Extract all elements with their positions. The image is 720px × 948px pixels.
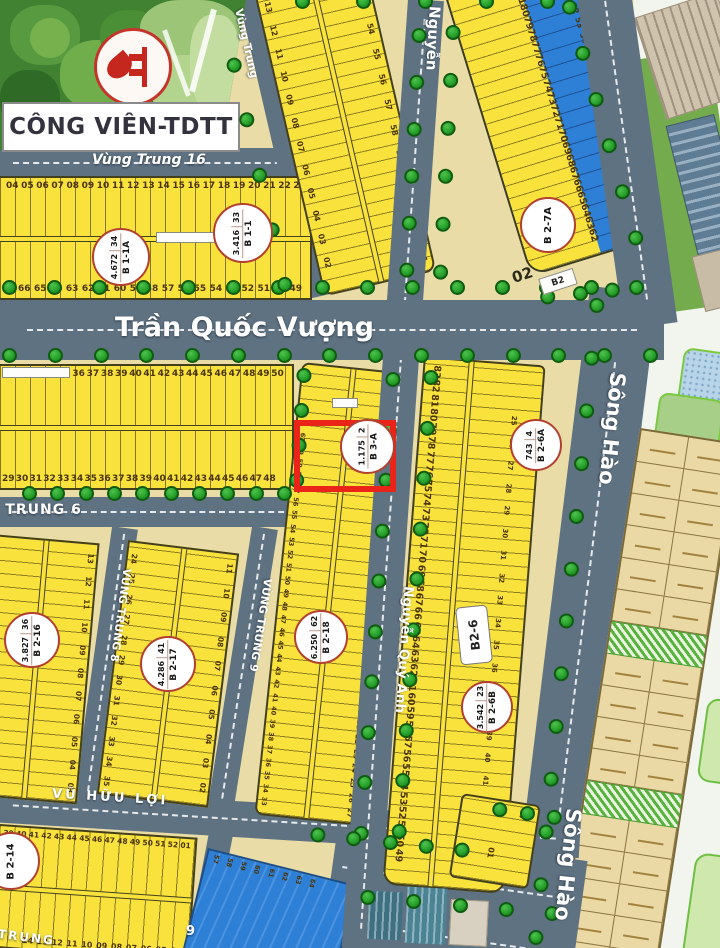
plot-number: 44 — [66, 834, 77, 842]
tree-icon — [450, 280, 465, 295]
plot-number: 36 — [98, 475, 111, 484]
code: B 2-7A — [542, 207, 553, 244]
count: 34 — [109, 232, 120, 249]
count: 2 — [356, 425, 367, 437]
plot-number: 40 — [270, 705, 278, 716]
plot-number: 50 — [273, 285, 286, 294]
dimension-label — [332, 398, 358, 408]
plot-number: 58 — [388, 124, 398, 137]
plot-number: 33 — [57, 475, 70, 484]
plot-number: 10 — [81, 941, 93, 948]
plot-number: 14 — [157, 182, 170, 191]
plot-number: 66 — [18, 285, 31, 294]
plot-number: 31 — [112, 695, 121, 706]
plot-number: 10 — [97, 182, 110, 191]
plot-number: 29 — [2, 475, 15, 484]
plot-number: 52 — [286, 549, 294, 560]
plot-number: 56 — [178, 285, 191, 294]
plot-number: 01 — [180, 842, 191, 850]
plot-number: 31 — [499, 550, 507, 561]
plot-circle-b2-17: 4.28641B 2-17 — [140, 636, 196, 692]
plot-number: 32 — [43, 475, 56, 484]
tree-icon — [238, 111, 256, 129]
plot-number: 22 — [278, 182, 291, 191]
plot-number: 64 — [50, 285, 63, 294]
plot-number: 47 — [250, 475, 263, 484]
plot-number: 46 — [278, 627, 286, 638]
plot-number: 49 — [130, 838, 141, 846]
tree-icon — [443, 73, 459, 89]
plot-number: 49 — [257, 370, 270, 379]
plot-circle-b2-18: 6.25062B 2-18 — [294, 610, 348, 664]
plot-number: 57 — [208, 853, 220, 864]
plot-number: 03 — [316, 233, 326, 246]
plot-number: 18 — [218, 182, 231, 191]
plot-number: 80 — [428, 408, 438, 422]
plot-number: 02 — [198, 782, 207, 793]
code: B 3-A — [368, 425, 379, 469]
plot-number: 61 — [263, 867, 275, 878]
plot-number: 75 — [422, 479, 432, 493]
b2-6-text: B2-6 — [465, 619, 482, 651]
block-midline — [305, 0, 384, 282]
count: 62 — [309, 612, 320, 629]
plot-number: 48 — [243, 370, 256, 379]
plot-number: 74 — [421, 493, 431, 507]
plot-circle-b2-7a: B 2-7A — [520, 197, 576, 253]
plot-number: 04 — [204, 733, 213, 744]
plot-number: 34 — [71, 475, 84, 484]
plot-number: 47 — [104, 836, 115, 844]
logo-gate-icon — [142, 47, 147, 87]
plot-number: 50 — [271, 370, 284, 379]
plot-number: 27 — [506, 460, 514, 471]
area: 4.286 — [156, 656, 167, 688]
plot-number: 51 — [285, 562, 293, 573]
plot-number: 07 — [125, 944, 137, 948]
plot-number: 79 — [427, 422, 437, 436]
count: 41 — [156, 639, 167, 656]
plot-number: 21 — [263, 182, 276, 191]
plot-number: 13 — [142, 182, 155, 191]
block-midline — [0, 884, 191, 904]
tree-icon — [433, 264, 449, 280]
code: B 2-6A — [537, 427, 548, 462]
plot-number: 24 — [129, 553, 138, 564]
plot-number: 03 — [201, 757, 210, 768]
plot-number: 53 — [359, 0, 369, 11]
plot-number: 12 — [127, 182, 140, 191]
plot-number: 34 — [494, 618, 502, 629]
park-foliage — [30, 18, 70, 58]
plot-number: 61 — [98, 285, 111, 294]
plot-number: 41 — [143, 370, 156, 379]
plot-number: 53 — [226, 285, 239, 294]
plot-number: 39 — [115, 370, 128, 379]
plot-number: 37 — [112, 475, 125, 484]
plot-number: 52 — [242, 285, 255, 294]
plot-number: 65 — [34, 285, 47, 294]
plot-number: 25 — [510, 415, 518, 426]
plot-number: 55 — [400, 763, 410, 777]
plot-number: 41 — [28, 831, 39, 839]
building-tower-icon — [449, 899, 489, 947]
plot-number: 36 — [490, 663, 498, 674]
plot-number: 49 — [289, 285, 302, 294]
building-render-bottom — [361, 884, 504, 948]
plot-number: 35 — [85, 475, 98, 484]
block-b3-a: 3435363738394041424344454647484950 29303… — [0, 364, 294, 490]
plot-number: 42 — [158, 370, 171, 379]
plot-number: 44 — [186, 370, 199, 379]
plot-number: 58 — [403, 720, 413, 734]
plot-number: 55 — [194, 285, 207, 294]
plot-number: 36 — [264, 758, 272, 769]
plot-number: 58 — [222, 857, 234, 868]
plot-number: 72 — [419, 521, 429, 535]
plot-number: 28 — [504, 483, 512, 494]
plot-number: 50 — [394, 834, 404, 848]
plot-number: 62 — [82, 285, 95, 294]
plot-number: 34 — [261, 784, 269, 795]
code: B 2-18 — [321, 612, 332, 661]
plot-number: 35 — [263, 771, 271, 782]
plot-number: 78 — [425, 436, 435, 450]
plot-number: 06 — [36, 182, 49, 191]
plot-number: 63 — [66, 285, 79, 294]
plot-number: 04 — [68, 760, 76, 771]
plot-number: 58 — [146, 285, 159, 294]
plot-number: 50 — [142, 839, 153, 847]
plot-number: 40 — [483, 753, 491, 764]
code: B 2-16 — [32, 615, 43, 664]
plot-number: 51 — [155, 840, 166, 848]
plot-number: 51 — [258, 285, 271, 294]
plot-number: 13 — [86, 553, 94, 564]
plot-number: 39 — [140, 475, 153, 484]
plot-number: 45 — [276, 640, 284, 651]
building-tower-icon — [405, 887, 448, 945]
plot-number: 47 — [279, 614, 287, 625]
plot-number: 35 — [102, 776, 111, 787]
plot-number: 46 — [92, 835, 103, 843]
plot-number: 62 — [277, 870, 289, 881]
plot-number: 11 — [273, 47, 283, 60]
plot-number: 56 — [401, 748, 411, 762]
plot-number: 55 — [371, 48, 381, 61]
count: 23 — [476, 682, 487, 699]
plot-number: 73 — [420, 507, 430, 521]
plot-circle-b2-16: 3.82736B 2-16 — [4, 612, 60, 668]
street-label-nguyen-top: Nguyễn — [422, 6, 443, 71]
plot-number: 43 — [54, 833, 65, 841]
plot-number: 36 — [72, 370, 85, 379]
plot-number: 10 — [279, 71, 289, 84]
dimension-label — [2, 367, 70, 378]
plot-number: 70 — [417, 550, 427, 564]
area: 3.542 — [476, 699, 487, 731]
plot-number: 06 — [210, 684, 219, 695]
plot-number: 57 — [162, 285, 175, 294]
plot-number: 69 — [415, 564, 425, 578]
plot-number: 54 — [289, 523, 297, 534]
plot-number: 47 — [229, 370, 242, 379]
plot-number: 11 — [82, 599, 90, 610]
plot-number: 30 — [115, 675, 124, 686]
plot-circle-b2-6a: 7434B 2-6A — [510, 419, 562, 471]
street-label-tran-quoc-vuong: Trần Quốc Vượng — [115, 312, 374, 343]
plot-number: 60 — [114, 285, 127, 294]
plot-number: 41 — [271, 692, 279, 703]
plot-number: 44 — [208, 475, 221, 484]
map-canvas[interactable]: 8180797877767574737271706968676665646362… — [0, 0, 720, 948]
dimension-label — [156, 232, 216, 243]
area: 6.250 — [309, 629, 320, 661]
plot-number: 44 — [275, 653, 283, 664]
plot-number: 32 — [497, 573, 505, 584]
plot-number: 20 — [248, 182, 261, 191]
plot-number: 47 — [517, 808, 527, 820]
plot-number: 08 — [216, 636, 225, 647]
plot-number: 48 — [263, 475, 276, 484]
block-midline — [0, 425, 292, 431]
plot-number: 59 — [130, 285, 143, 294]
plot-number: 83 — [431, 365, 441, 379]
plot-number: 09 — [78, 645, 86, 656]
plot-circle-b1-1a: 4.67234B 1-1A — [92, 228, 150, 286]
plot-number: 53 — [398, 791, 408, 805]
area: 1.175 — [356, 436, 367, 468]
plot-number: 64 — [304, 877, 316, 888]
plot-number: 16 — [188, 182, 201, 191]
plot-numbers-bottom: 2930313233343536373839404142434445464748 — [2, 475, 276, 484]
block-bottom-small: 4847 01 — [449, 793, 541, 889]
plot-number: 12 — [84, 576, 92, 587]
plot-number: 49 — [393, 848, 403, 862]
plot-number: 51 — [395, 820, 405, 834]
plot-number: 11 — [225, 563, 234, 574]
plot-number: 45 — [200, 370, 213, 379]
building-tower-icon — [367, 891, 403, 941]
code: B 2-14 — [5, 843, 16, 879]
area: 743 — [525, 439, 536, 463]
plot-number: 67 — [2, 285, 15, 294]
plot-number: 07 — [74, 691, 82, 702]
plot-number: 54 — [399, 777, 409, 791]
plot-number: 38 — [126, 475, 139, 484]
plot-number-01: 01 — [485, 847, 496, 859]
street-label-vung-trung-16: Vùng Trung 16 — [92, 152, 206, 168]
plot-number: 46 — [214, 370, 227, 379]
plot-number: 52 — [396, 805, 406, 819]
plot-number: 29 — [503, 505, 511, 516]
count: 36 — [20, 615, 31, 632]
tree-icon — [495, 280, 510, 295]
plot-number: 77 — [424, 450, 434, 464]
plot-number: 56 — [377, 73, 387, 86]
code: B 2-17 — [168, 639, 179, 688]
street-label-vung-trung-9-end: 9 — [186, 924, 195, 939]
code: B 1-1A — [121, 232, 132, 281]
block-label-b2-6: B2-6 — [455, 604, 493, 665]
plot-number: 10 — [80, 622, 88, 633]
plot-number: 42 — [272, 679, 280, 690]
plot-number: 45 — [79, 835, 90, 843]
tree-icon — [435, 216, 451, 232]
plot-number: 49 — [282, 588, 290, 599]
plot-circle-b2-6b: 3.54223B 2-6B — [461, 681, 513, 733]
plot-number: 53 — [287, 536, 295, 547]
plot-number: 41 — [481, 775, 489, 786]
area: 3.416 — [231, 225, 242, 257]
plot-number: 05 — [21, 182, 34, 191]
code: B 1-1 — [243, 208, 254, 257]
plot-number: 10 — [222, 587, 231, 598]
plot-number: 40 — [153, 475, 166, 484]
plot-number: 33 — [107, 735, 116, 746]
plot-number: 32 — [110, 715, 119, 726]
plot-number: 59 — [236, 860, 248, 871]
plot-number: 52 — [167, 841, 178, 849]
plot-number: 08 — [67, 182, 80, 191]
plot-number: 55 — [290, 510, 298, 521]
plot-number: 09 — [82, 182, 95, 191]
plot-number: 57 — [402, 734, 412, 748]
logo-gate-icon — [129, 69, 143, 76]
plot-number: 12 — [268, 24, 278, 37]
plot-number: 11 — [112, 182, 125, 191]
plot-number: 41 — [167, 475, 180, 484]
plot-number: 82 — [430, 379, 440, 393]
plot-number: 35 — [492, 640, 500, 651]
plot-number: 60 — [249, 863, 261, 874]
plot-number: 02 — [322, 256, 332, 269]
plot-numbers-b1-1-bottom: 67666564636261605958575655545352515049 — [2, 285, 302, 294]
plot-number: 33 — [260, 797, 268, 808]
plot-number: 17 — [203, 182, 216, 191]
plot-number: 05 — [70, 737, 78, 748]
plot-number: 07 — [295, 140, 305, 153]
count: 33 — [231, 208, 242, 225]
plot-number: 37 — [266, 745, 274, 756]
plot-number: 07 — [213, 660, 222, 671]
area: 4.672 — [109, 249, 120, 281]
logo-gate-icon — [129, 54, 143, 61]
plot-number: 05 — [305, 187, 315, 200]
plot-number: 40 — [129, 370, 142, 379]
plot-number: 34 — [105, 756, 114, 767]
plot-number: 48 — [494, 805, 504, 817]
plot-number: 48 — [117, 837, 128, 845]
plot-number: 09 — [219, 612, 228, 623]
plot-number: 04 — [311, 210, 321, 223]
plot-number: 42 — [41, 832, 52, 840]
plot-number: 42 — [181, 475, 194, 484]
plot-number: 43 — [274, 666, 282, 677]
plot-number: 06 — [300, 163, 310, 176]
plot-number: 31 — [30, 475, 43, 484]
plot-number: 76 — [423, 464, 433, 478]
tree-icon — [438, 168, 454, 184]
plot-numbers-b1-1-top: 0405060708091011121314151617181920212223 — [6, 182, 306, 191]
plot-number: 48 — [281, 601, 289, 612]
plot-numbers-blue: 5758596061626364 — [208, 853, 315, 889]
plot-number: 54 — [365, 23, 375, 36]
plot-number: 37 — [87, 370, 100, 379]
plot-number: 08 — [289, 117, 299, 130]
plot-number: 38 — [267, 732, 275, 743]
park-name: CÔNG VIÊN-TDTT — [9, 114, 233, 140]
area: 3.827 — [20, 632, 31, 664]
park-logo — [94, 28, 172, 106]
plot-number: 08 — [76, 668, 84, 679]
plot-number: 54 — [210, 285, 223, 294]
plot-number: 30 — [16, 475, 29, 484]
plot-number: 56 — [292, 497, 300, 508]
plot-circle-b3-a: 1.1752B 3-A — [340, 419, 395, 474]
plot-numbers-small: 4847 — [493, 806, 528, 819]
plot-number: 06 — [72, 714, 80, 725]
plot-number: 11 — [66, 940, 78, 948]
plot-number: 39 — [268, 719, 276, 730]
plot-number: 43 — [195, 475, 208, 484]
plot-number: 43 — [172, 370, 185, 379]
plot-number: 38 — [101, 370, 114, 379]
plot-number: 46 — [236, 475, 249, 484]
plot-number: 09 — [96, 942, 108, 948]
plot-number: 63 — [290, 874, 302, 885]
tree-icon — [440, 120, 456, 136]
street-label-vung-trung-6: VÙNG TRUNG 6 — [0, 502, 82, 518]
b2-box-label: B2 — [550, 275, 566, 289]
block-midline — [21, 541, 49, 799]
code: B 2-6B — [488, 682, 499, 731]
plot-number: 19 — [233, 182, 246, 191]
plot-number: 07 — [51, 182, 64, 191]
plot-number: 30 — [501, 528, 509, 539]
plot-number: 15 — [172, 182, 185, 191]
plot-circle-b1-1: 3.41633B 1-1 — [213, 203, 273, 263]
count: 4 — [525, 427, 536, 439]
block-blue-bottom: 5758596061626364 — [178, 848, 357, 948]
plot-number: 71 — [418, 535, 428, 549]
plot-number: 33 — [495, 595, 503, 606]
plot-number: 81 — [429, 393, 439, 407]
plot-number: 13 — [263, 1, 273, 14]
plot-number: 08 — [111, 943, 123, 948]
park-banner: CÔNG VIÊN-TDTT — [2, 102, 240, 152]
plot-numbers-top: 3435363738394041424344454647484950 — [44, 370, 284, 379]
plot-number: 50 — [283, 575, 291, 586]
plot-number: 45 — [222, 475, 235, 484]
plot-number: 04 — [6, 182, 19, 191]
plot-number: 57 — [383, 99, 393, 112]
plot-number: 05 — [207, 709, 216, 720]
plot-number: 09 — [284, 94, 294, 107]
